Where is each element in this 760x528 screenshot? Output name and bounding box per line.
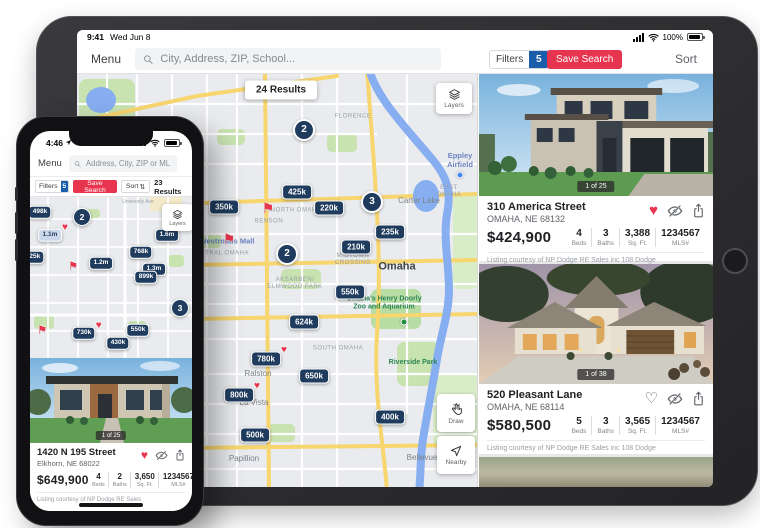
- listing-city: OMAHA, NE 68132: [487, 214, 586, 224]
- listing-stat: 1234567MLS#: [655, 416, 705, 435]
- listing-courtesy: Listing courtesy of NP Dodge RE Sales: [37, 492, 185, 503]
- share-icon[interactable]: [692, 203, 705, 218]
- hide-listing-icon[interactable]: [155, 450, 168, 461]
- photo-counter-badge: 1 of 25: [577, 181, 614, 192]
- price-pin[interactable]: 780k♥: [251, 352, 281, 367]
- cluster-pin[interactable]: 3: [361, 191, 383, 213]
- favorite-heart-icon: ♥: [62, 223, 68, 233]
- status-date: Wed Jun 8: [110, 32, 150, 42]
- flag-pin[interactable]: ⚑: [223, 232, 236, 246]
- price-pin[interactable]: 220k: [314, 201, 344, 216]
- battery-percent: 100%: [663, 33, 683, 42]
- flag-pin[interactable]: ⚑: [37, 326, 47, 337]
- listing-address: 1420 N 195 Street: [37, 447, 116, 458]
- results-count-badge: 24 Results: [245, 81, 317, 100]
- listing-stat: 3,650Sq. Ft.: [130, 472, 158, 488]
- price-pin[interactable]: 498k: [30, 206, 52, 219]
- price-pin[interactable]: 210k: [341, 240, 371, 255]
- layers-button[interactable]: Layers: [436, 83, 472, 114]
- map-view[interactable]: University Ave 498k21.1m♥1.6m525k768k1.2…: [30, 197, 192, 358]
- hide-listing-icon[interactable]: [667, 392, 683, 406]
- cluster-pin[interactable]: 2: [293, 119, 315, 141]
- flag-pin[interactable]: ⚑: [68, 262, 78, 273]
- hide-listing-icon[interactable]: [667, 204, 683, 218]
- listing-stat: 2Baths: [108, 472, 130, 488]
- listing-stat: 1234567MLS#: [158, 472, 192, 488]
- menu-button[interactable]: Menu: [91, 52, 121, 66]
- save-search-button[interactable]: Save Search: [73, 180, 117, 193]
- share-icon[interactable]: [692, 391, 705, 406]
- battery-icon: [687, 33, 703, 41]
- listing-stat: 3,565Sq. Ft.: [619, 416, 655, 435]
- price-pin[interactable]: 768k: [129, 246, 152, 259]
- search-field[interactable]: [84, 158, 172, 169]
- cluster-pin[interactable]: 3: [171, 299, 189, 317]
- listing-stats: 4Beds3Baths3,388Sq. Ft.1234567MLS#: [567, 228, 705, 247]
- status-time: 9:41: [87, 32, 104, 42]
- volume-down-button: [15, 239, 18, 261]
- price-pin[interactable]: 899k: [134, 271, 157, 284]
- price-pin[interactable]: 400k: [375, 410, 405, 425]
- layers-icon: [172, 209, 183, 220]
- wifi-icon: [648, 33, 659, 42]
- iphone-device: 4:46 Menu Filters 5: [16, 116, 204, 526]
- nearby-arrow-icon: [449, 444, 463, 458]
- photo-counter-badge: 1 of 38: [577, 369, 614, 380]
- search-input[interactable]: [135, 48, 441, 70]
- price-pin[interactable]: 1.2m: [89, 257, 113, 270]
- ipad-status-bar: 9:41 Wed Jun 8 100%: [77, 30, 713, 44]
- results-count: 23 Results: [154, 178, 187, 196]
- favorite-heart-icon: ♥: [281, 346, 287, 356]
- iphone-filter-row: Filters 5 Save Search Sort ⇅ 23 Results: [30, 177, 192, 197]
- listing-details: 520 Pleasant Lane OMAHA, NE 68114 ♡: [479, 384, 713, 452]
- ipad-toolbar: Menu Filters 5 Save Search Sort: [77, 44, 713, 74]
- volume-up-button: [15, 212, 18, 234]
- iphone-notch: [69, 131, 153, 146]
- scene: 9:41 Wed Jun 8 100% Menu Filters 5: [0, 0, 760, 528]
- favorite-heart-icon: ♥: [254, 382, 260, 392]
- listing-city: OMAHA, NE 68114: [487, 402, 582, 412]
- mute-switch: [15, 187, 18, 201]
- share-icon[interactable]: [175, 449, 185, 461]
- draw-button[interactable]: Draw: [437, 394, 475, 432]
- sort-arrows-icon: ⇅: [139, 183, 145, 191]
- filters-count-badge: 5: [61, 180, 68, 193]
- price-pin[interactable]: 550k: [335, 285, 365, 300]
- cluster-pin[interactable]: 2: [276, 243, 298, 265]
- price-pin[interactable]: 500k: [240, 428, 270, 443]
- price-pin[interactable]: 350k: [209, 200, 239, 215]
- listing-courtesy: Listing courtesy of NP Dodge RE Sales in…: [487, 252, 705, 264]
- iphone-screen: 4:46 Menu Filters 5: [30, 131, 192, 511]
- favorite-heart-icon[interactable]: ♥: [141, 449, 148, 461]
- listing-details: 310 America Street OMAHA, NE 68132 ♥: [479, 196, 713, 264]
- filters-button[interactable]: Filters 5: [35, 180, 69, 193]
- listing-stat: 3Baths: [591, 416, 619, 435]
- layers-icon: [448, 88, 461, 101]
- favorite-heart-icon[interactable]: ♡: [645, 391, 658, 406]
- cluster-pin[interactable]: 2: [73, 208, 91, 226]
- listing-stat: 5Beds: [567, 416, 592, 435]
- listing-details: 1420 N 195 Street Elkhorn, NE 68022 ♥ $6…: [30, 443, 192, 503]
- filters-count-badge: 5: [529, 50, 548, 69]
- ipad-home-button[interactable]: [722, 248, 748, 274]
- listing-courtesy: Listing courtesy of NP Dodge RE Sales in…: [487, 440, 705, 452]
- listing-address: 520 Pleasant Lane: [487, 389, 582, 401]
- price-pin[interactable]: 550k: [126, 324, 149, 337]
- iphone-toolbar: Menu: [30, 151, 192, 177]
- listing-card[interactable]: 1 of 38 520 Pleasant Lane OMAHA, NE 6811…: [479, 264, 713, 454]
- listing-price: $424,900: [487, 229, 551, 246]
- listing-stats: 4Beds2Baths3,650Sq. Ft.1234567MLS#: [89, 472, 192, 488]
- listing-stat: 3,388Sq. Ft.: [619, 228, 655, 247]
- favorite-heart-icon: ♥: [96, 321, 102, 331]
- listing-stat: 3Baths: [591, 228, 619, 247]
- draw-hand-icon: [449, 402, 464, 417]
- listing-photo: 1 of 38: [479, 264, 713, 384]
- listing-photo: 1 of 25: [479, 74, 713, 196]
- favorite-heart-icon[interactable]: ♥: [649, 203, 658, 218]
- sort-button[interactable]: Sort ⇅: [121, 180, 150, 193]
- status-time: 4:46: [46, 138, 63, 148]
- price-pin[interactable]: 650k: [299, 369, 329, 384]
- listings-panel: 1 of 25 310 America Street OMAHA, NE 681…: [479, 74, 713, 487]
- nearby-button[interactable]: Nearby: [437, 436, 475, 474]
- listing-price: $580,500: [487, 417, 551, 434]
- listing-card[interactable]: 1 of 25 1420 N 195 Street Elkhorn, NE 68…: [30, 358, 192, 511]
- save-search-button[interactable]: Save Search: [547, 50, 622, 69]
- price-pin[interactable]: 800k♥: [224, 388, 254, 403]
- listing-stat: 1234567MLS#: [655, 228, 705, 247]
- cellular-signal-icon: [633, 33, 644, 42]
- listing-price: $649,900: [37, 473, 89, 487]
- battery-icon: [164, 139, 180, 147]
- photo-counter-badge: 1 of 25: [96, 431, 126, 440]
- next-listing-photo-partial[interactable]: [479, 457, 713, 487]
- listing-card[interactable]: 1 of 25 310 America Street OMAHA, NE 681…: [479, 74, 713, 261]
- price-pin[interactable]: 525k: [30, 251, 45, 264]
- listing-stat: 4Beds: [567, 228, 592, 247]
- price-pin[interactable]: 1.1m♥: [38, 229, 62, 242]
- listing-stats: 5Beds3Baths3,565Sq. Ft.1234567MLS#: [567, 416, 705, 435]
- search-field[interactable]: [158, 52, 433, 66]
- sort-button[interactable]: Sort: [675, 52, 697, 66]
- listing-photo: 1 of 25: [30, 358, 192, 443]
- price-pin[interactable]: 624k: [289, 315, 319, 330]
- price-pin[interactable]: 430k: [106, 337, 129, 350]
- search-input[interactable]: [69, 155, 177, 172]
- price-pin[interactable]: 730k♥: [72, 327, 95, 340]
- search-icon: [74, 160, 81, 168]
- filters-button[interactable]: Filters 5: [489, 50, 549, 69]
- layers-button[interactable]: Layers: [162, 204, 192, 231]
- search-icon: [143, 54, 153, 65]
- price-pin[interactable]: 235k: [375, 225, 405, 240]
- flag-pin[interactable]: ⚑: [262, 201, 275, 215]
- listing-stat: 4Beds: [89, 472, 109, 488]
- listing-city: Elkhorn, NE 68022: [37, 459, 116, 468]
- listing-address: 310 America Street: [487, 201, 586, 213]
- home-indicator[interactable]: [79, 503, 143, 507]
- price-pin[interactable]: 425k: [282, 185, 312, 200]
- menu-button[interactable]: Menu: [38, 158, 62, 169]
